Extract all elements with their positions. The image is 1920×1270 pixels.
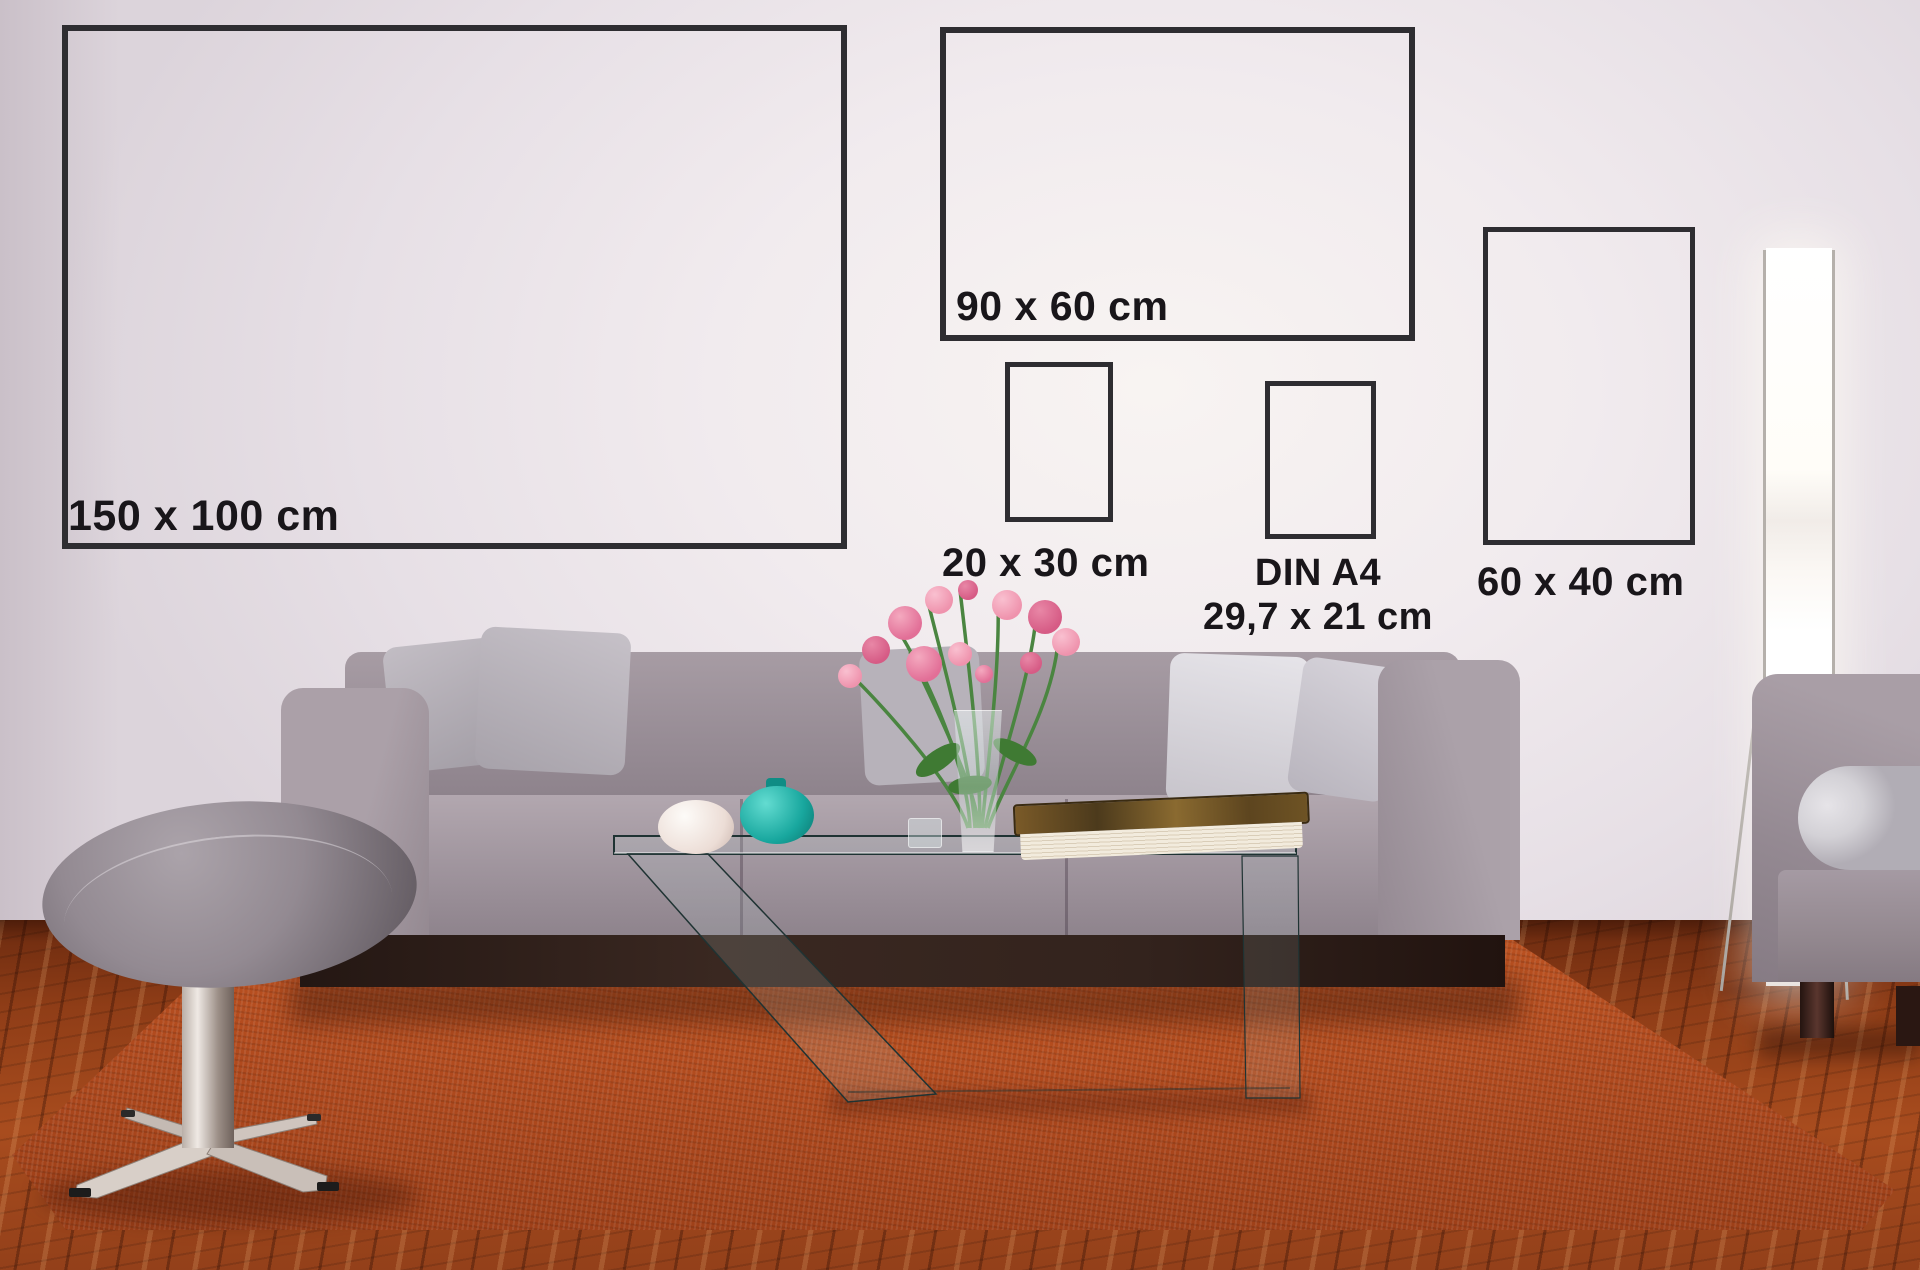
book	[1013, 792, 1311, 867]
pink-flower-bud	[948, 642, 972, 666]
pink-flower	[906, 646, 942, 682]
pink-flower-bud	[1020, 652, 1042, 674]
right-sofa-seat	[1778, 870, 1920, 982]
pink-flower-bud	[975, 665, 993, 683]
pink-flower-bud	[838, 664, 862, 688]
white-vase	[658, 800, 734, 854]
sofa-pillow	[474, 626, 631, 776]
size-label-90x60: 90 x 60 cm	[956, 283, 1168, 330]
size-frame-din-a4	[1265, 381, 1376, 539]
size-label-60x40: 60 x 40 cm	[1477, 560, 1684, 605]
glass-coffee-table	[590, 830, 1320, 1120]
size-frame-20x30	[1005, 362, 1113, 522]
size-label-din-a4: DIN A4 29,7 x 21 cm	[1168, 551, 1468, 639]
size-frame-150x100	[62, 25, 847, 549]
sofa-armrest-right	[1378, 660, 1520, 940]
pink-flower-bud	[958, 580, 978, 600]
right-sofa-leg	[1896, 986, 1920, 1046]
teal-vase	[740, 786, 814, 844]
right-sofa-bolster-cushion	[1798, 766, 1920, 870]
size-label-din-a4-dimensions: 29,7 x 21 cm	[1168, 595, 1468, 639]
stool-pedestal	[182, 968, 234, 1148]
living-room-poster-size-mockup: 150 x 100 cm 90 x 60 cm 20 x 30 cm DIN A…	[0, 0, 1920, 1270]
pink-flower	[1052, 628, 1080, 656]
right-sofa-leg	[1800, 976, 1834, 1038]
pink-flower	[925, 586, 953, 614]
size-label-150x100: 150 x 100 cm	[68, 492, 339, 541]
pink-flower	[862, 636, 890, 664]
pink-flower	[992, 590, 1022, 620]
size-frame-60x40	[1483, 227, 1695, 545]
pink-flower	[1028, 600, 1062, 634]
size-label-din-a4-title: DIN A4	[1168, 551, 1468, 595]
pink-flower	[888, 606, 922, 640]
